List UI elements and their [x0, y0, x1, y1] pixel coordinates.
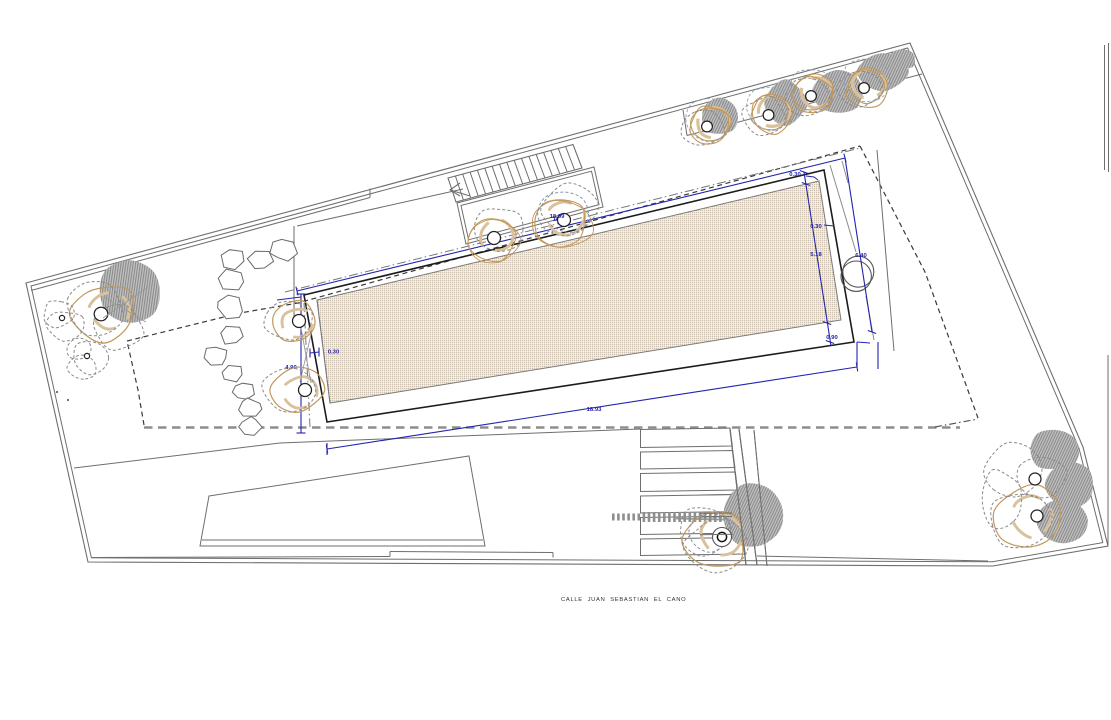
svg-text:6.40: 6.40	[855, 253, 867, 259]
svg-text:5.18: 5.18	[810, 252, 822, 258]
svg-text:18.99: 18.99	[550, 214, 565, 220]
svg-text:0.30: 0.30	[328, 350, 340, 356]
svg-text:0.30: 0.30	[810, 224, 822, 230]
svg-text:18.93: 18.93	[587, 407, 602, 413]
svg-text:0.90: 0.90	[826, 335, 838, 341]
svg-text:CALLE JUAN SEBASTIAN EL CANO: CALLE JUAN SEBASTIAN EL CANO	[561, 597, 686, 603]
svg-text:0.30: 0.30	[789, 172, 801, 178]
